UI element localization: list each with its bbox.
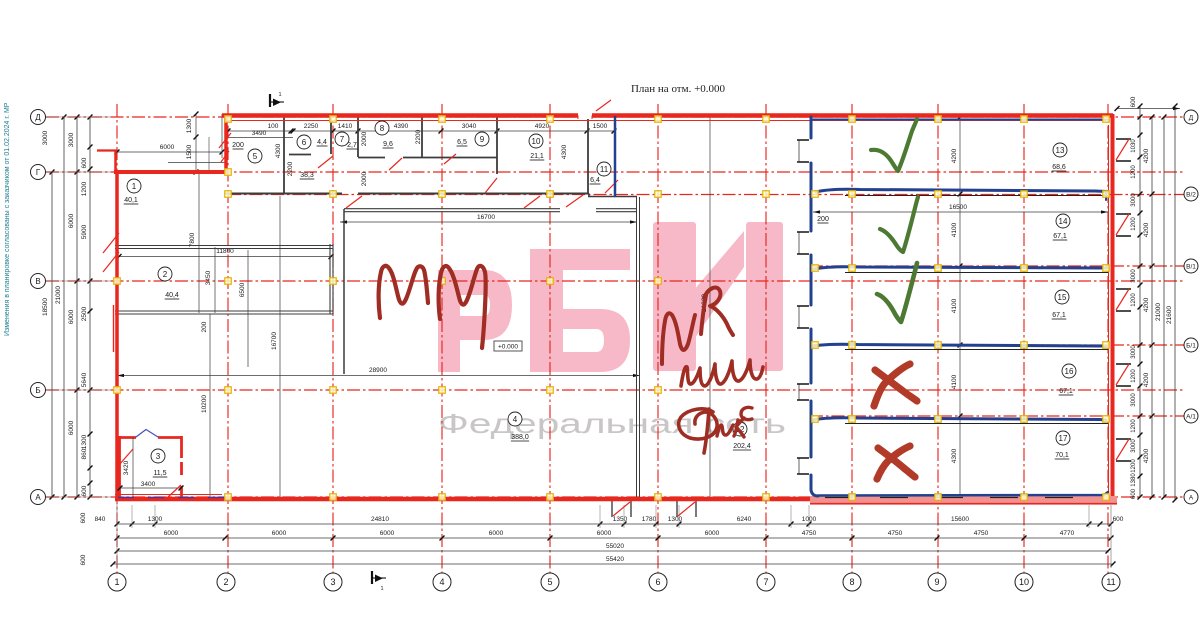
svg-text:3000: 3000	[68, 132, 75, 147]
svg-text:6000: 6000	[164, 530, 179, 537]
svg-text:6000: 6000	[68, 309, 75, 324]
svg-text:21000: 21000	[55, 286, 62, 304]
svg-text:4: 4	[439, 577, 444, 587]
svg-text:68,6: 68,6	[1052, 164, 1066, 171]
svg-text:3000: 3000	[1131, 193, 1137, 207]
svg-text:4770: 4770	[1060, 530, 1075, 537]
svg-text:8: 8	[849, 577, 854, 587]
svg-text:6500: 6500	[239, 282, 246, 297]
svg-text:4100: 4100	[951, 298, 958, 313]
svg-text:Изменения в планировке согласо: Изменения в планировке согласованы с зак…	[4, 102, 11, 336]
svg-text:1500: 1500	[593, 123, 608, 130]
svg-text:200: 200	[201, 321, 208, 332]
svg-text:10200: 10200	[201, 395, 208, 413]
svg-text:3000: 3000	[1131, 439, 1137, 453]
svg-text:1030: 1030	[1131, 139, 1137, 153]
svg-text:860: 860	[81, 448, 88, 459]
svg-text:3000: 3000	[42, 130, 49, 145]
svg-text:4100: 4100	[951, 222, 958, 237]
svg-text:План на отм. +0.000: План на отм. +0.000	[631, 83, 726, 95]
svg-text:1200: 1200	[1131, 293, 1137, 307]
svg-text:9: 9	[934, 577, 939, 587]
svg-text:600: 600	[1131, 488, 1137, 499]
svg-text:4200: 4200	[1143, 448, 1150, 463]
svg-text:6: 6	[655, 577, 660, 587]
svg-text:600: 600	[1130, 96, 1137, 107]
svg-text:А: А	[35, 493, 41, 502]
svg-text:6000: 6000	[68, 213, 75, 228]
svg-text:4,4: 4,4	[317, 139, 327, 146]
svg-text:4200: 4200	[1143, 148, 1150, 163]
svg-text:11: 11	[600, 165, 609, 174]
svg-text:55420: 55420	[606, 556, 624, 563]
svg-text:4390: 4390	[394, 123, 409, 130]
svg-text:202,4: 202,4	[733, 443, 751, 450]
svg-text:9: 9	[480, 135, 485, 144]
svg-text:3420: 3420	[123, 460, 130, 475]
svg-text:Б: Б	[35, 386, 40, 395]
svg-text:15: 15	[1058, 293, 1067, 302]
svg-text:4200: 4200	[951, 148, 958, 163]
svg-text:7: 7	[763, 577, 768, 587]
svg-text:2,7: 2,7	[347, 142, 357, 149]
svg-text:24810: 24810	[371, 516, 389, 523]
svg-text:В/2: В/2	[1186, 191, 1196, 198]
svg-text:1300: 1300	[186, 118, 193, 133]
svg-text:2250: 2250	[304, 123, 319, 130]
svg-text:40,1: 40,1	[124, 197, 138, 204]
svg-text:2: 2	[163, 270, 168, 279]
svg-text:2200: 2200	[415, 129, 422, 144]
svg-text:600: 600	[81, 157, 88, 168]
svg-text:16700: 16700	[271, 332, 278, 350]
svg-text:+0.000: +0.000	[498, 344, 518, 351]
svg-text:6000: 6000	[489, 530, 504, 537]
svg-text:3000: 3000	[1131, 269, 1137, 283]
svg-text:1380: 1380	[1131, 473, 1137, 487]
svg-text:А/1: А/1	[1186, 413, 1196, 420]
svg-text:21,1: 21,1	[530, 153, 544, 160]
svg-text:1: 1	[380, 586, 383, 592]
svg-text:3000: 3000	[1131, 393, 1137, 407]
svg-text:1300: 1300	[668, 516, 683, 523]
svg-text:1: 1	[132, 182, 137, 191]
svg-text:11,5: 11,5	[153, 470, 166, 477]
svg-text:4100: 4100	[951, 374, 958, 389]
svg-text:9,6: 9,6	[383, 141, 393, 148]
svg-text:1200: 1200	[1131, 369, 1137, 383]
svg-text:388,0: 388,0	[511, 434, 529, 441]
svg-text:5: 5	[547, 577, 552, 587]
svg-text:6000: 6000	[272, 530, 287, 537]
svg-text:28900: 28900	[369, 367, 387, 374]
svg-text:3040: 3040	[462, 123, 477, 130]
svg-text:6240: 6240	[737, 516, 752, 523]
svg-text:Г: Г	[36, 168, 41, 177]
svg-text:1410: 1410	[338, 123, 353, 130]
svg-text:1200: 1200	[1131, 165, 1137, 179]
svg-text:4750: 4750	[974, 530, 989, 537]
svg-text:4200: 4200	[1143, 297, 1150, 312]
svg-text:11: 11	[1106, 577, 1115, 587]
svg-text:21600: 21600	[1166, 306, 1173, 324]
svg-text:200: 200	[817, 216, 829, 223]
svg-text:4: 4	[513, 415, 518, 424]
svg-text:3000: 3000	[1131, 345, 1137, 359]
svg-text:2: 2	[223, 577, 228, 587]
svg-text:10: 10	[1019, 577, 1029, 587]
svg-text:3: 3	[330, 577, 335, 587]
svg-text:1200: 1200	[1131, 459, 1137, 473]
svg-text:1: 1	[278, 92, 281, 98]
svg-text:3450: 3450	[205, 270, 212, 285]
svg-text:4750: 4750	[802, 530, 817, 537]
svg-text:1200: 1200	[1131, 217, 1137, 231]
svg-text:4200: 4200	[1143, 222, 1150, 237]
svg-text:5640: 5640	[81, 372, 88, 387]
svg-text:Д: Д	[35, 113, 41, 122]
svg-text:10: 10	[532, 137, 541, 146]
svg-text:4300: 4300	[275, 143, 282, 158]
svg-text:16: 16	[1065, 367, 1074, 376]
svg-text:600: 600	[81, 485, 88, 496]
svg-text:13: 13	[1056, 146, 1065, 155]
svg-text:38,3: 38,3	[300, 172, 314, 179]
svg-text:6000: 6000	[380, 530, 395, 537]
svg-text:В: В	[35, 277, 40, 286]
svg-text:6,4: 6,4	[590, 177, 600, 184]
svg-text:21000: 21000	[1155, 303, 1162, 321]
svg-text:15600: 15600	[951, 516, 969, 523]
svg-text:6000: 6000	[705, 530, 720, 537]
svg-text:Б/1: Б/1	[1186, 342, 1196, 349]
svg-text:А: А	[1189, 494, 1194, 501]
svg-text:4750: 4750	[888, 530, 903, 537]
svg-text:40,4: 40,4	[165, 292, 179, 299]
svg-text:600: 600	[80, 512, 87, 523]
svg-text:840: 840	[95, 516, 106, 523]
svg-text:2200: 2200	[287, 161, 294, 176]
svg-text:1200: 1200	[1131, 419, 1137, 433]
svg-text:6: 6	[302, 138, 307, 147]
svg-text:4300: 4300	[561, 144, 568, 159]
svg-text:4920: 4920	[535, 123, 550, 130]
svg-text:3490: 3490	[252, 130, 267, 137]
svg-text:8: 8	[380, 124, 385, 133]
svg-text:1780: 1780	[642, 516, 657, 523]
svg-text:6000: 6000	[68, 420, 75, 435]
svg-text:1300: 1300	[81, 434, 88, 449]
svg-text:70,1: 70,1	[1055, 452, 1069, 459]
svg-text:2000: 2000	[361, 131, 368, 146]
svg-text:18500: 18500	[42, 298, 49, 316]
svg-text:2500: 2500	[81, 306, 88, 321]
svg-text:2000: 2000	[361, 171, 368, 186]
svg-text:6000: 6000	[597, 530, 612, 537]
svg-text:200: 200	[232, 142, 244, 149]
svg-text:67,1: 67,1	[1059, 388, 1073, 395]
svg-text:67,1: 67,1	[1053, 233, 1067, 240]
svg-text:100: 100	[268, 123, 279, 130]
svg-text:5900: 5900	[81, 224, 88, 239]
svg-text:600: 600	[1113, 516, 1124, 523]
svg-text:55020: 55020	[606, 543, 624, 550]
svg-text:1: 1	[114, 577, 119, 587]
svg-text:17: 17	[1059, 434, 1068, 443]
svg-text:1350: 1350	[613, 516, 628, 523]
svg-text:Д: Д	[1189, 114, 1194, 121]
svg-text:3: 3	[156, 452, 161, 461]
svg-text:4300: 4300	[951, 448, 958, 463]
svg-text:1200: 1200	[81, 181, 88, 196]
svg-text:14: 14	[1059, 217, 1068, 226]
svg-text:6000: 6000	[160, 144, 175, 151]
svg-text:4200: 4200	[1143, 372, 1150, 387]
svg-text:3400: 3400	[141, 481, 156, 488]
svg-text:16500: 16500	[949, 204, 967, 211]
svg-text:67,1: 67,1	[1052, 312, 1066, 319]
svg-text:16700: 16700	[477, 214, 495, 221]
svg-text:5: 5	[253, 152, 258, 161]
svg-text:7: 7	[340, 135, 345, 144]
svg-text:6,5: 6,5	[457, 139, 467, 146]
svg-text:600: 600	[80, 554, 87, 565]
svg-text:В/1: В/1	[1186, 263, 1196, 270]
